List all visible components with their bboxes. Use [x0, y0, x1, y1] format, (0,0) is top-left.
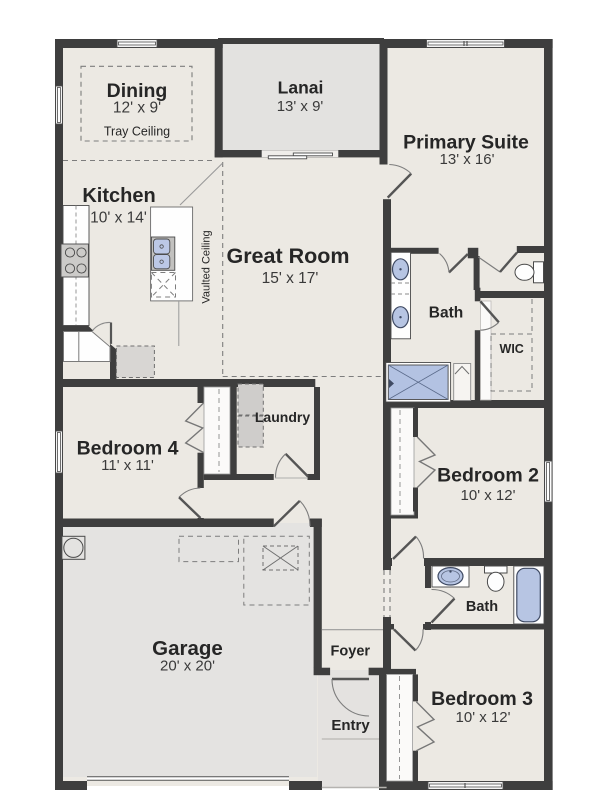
svg-text:10' x 12': 10' x 12' [461, 487, 516, 504]
svg-text:Entry: Entry [331, 717, 370, 734]
svg-text:Bath: Bath [466, 599, 498, 615]
svg-text:Tray Ceiling: Tray Ceiling [104, 125, 170, 139]
svg-text:Laundry: Laundry [255, 409, 310, 425]
svg-text:13' x 16': 13' x 16' [440, 151, 495, 168]
svg-text:10' x 12': 10' x 12' [456, 709, 511, 726]
svg-text:Bedroom 2: Bedroom 2 [437, 465, 539, 487]
svg-text:Great Room: Great Room [226, 244, 349, 268]
svg-text:15' x 17': 15' x 17' [262, 270, 319, 287]
svg-text:10' x 14': 10' x 14' [90, 210, 147, 227]
svg-text:20' x 20': 20' x 20' [160, 658, 215, 675]
svg-text:13' x 9': 13' x 9' [277, 98, 324, 115]
svg-text:12' x 9': 12' x 9' [113, 100, 161, 117]
svg-text:Vaulted Ceiling: Vaulted Ceiling [201, 230, 213, 303]
svg-text:Kitchen: Kitchen [82, 185, 155, 207]
svg-text:11' x 11': 11' x 11' [101, 457, 154, 474]
svg-text:Lanai: Lanai [278, 78, 324, 98]
svg-text:Bath: Bath [429, 305, 463, 322]
svg-text:Bedroom 3: Bedroom 3 [431, 688, 533, 710]
svg-text:WIC: WIC [500, 342, 524, 356]
svg-text:Foyer: Foyer [331, 643, 371, 659]
